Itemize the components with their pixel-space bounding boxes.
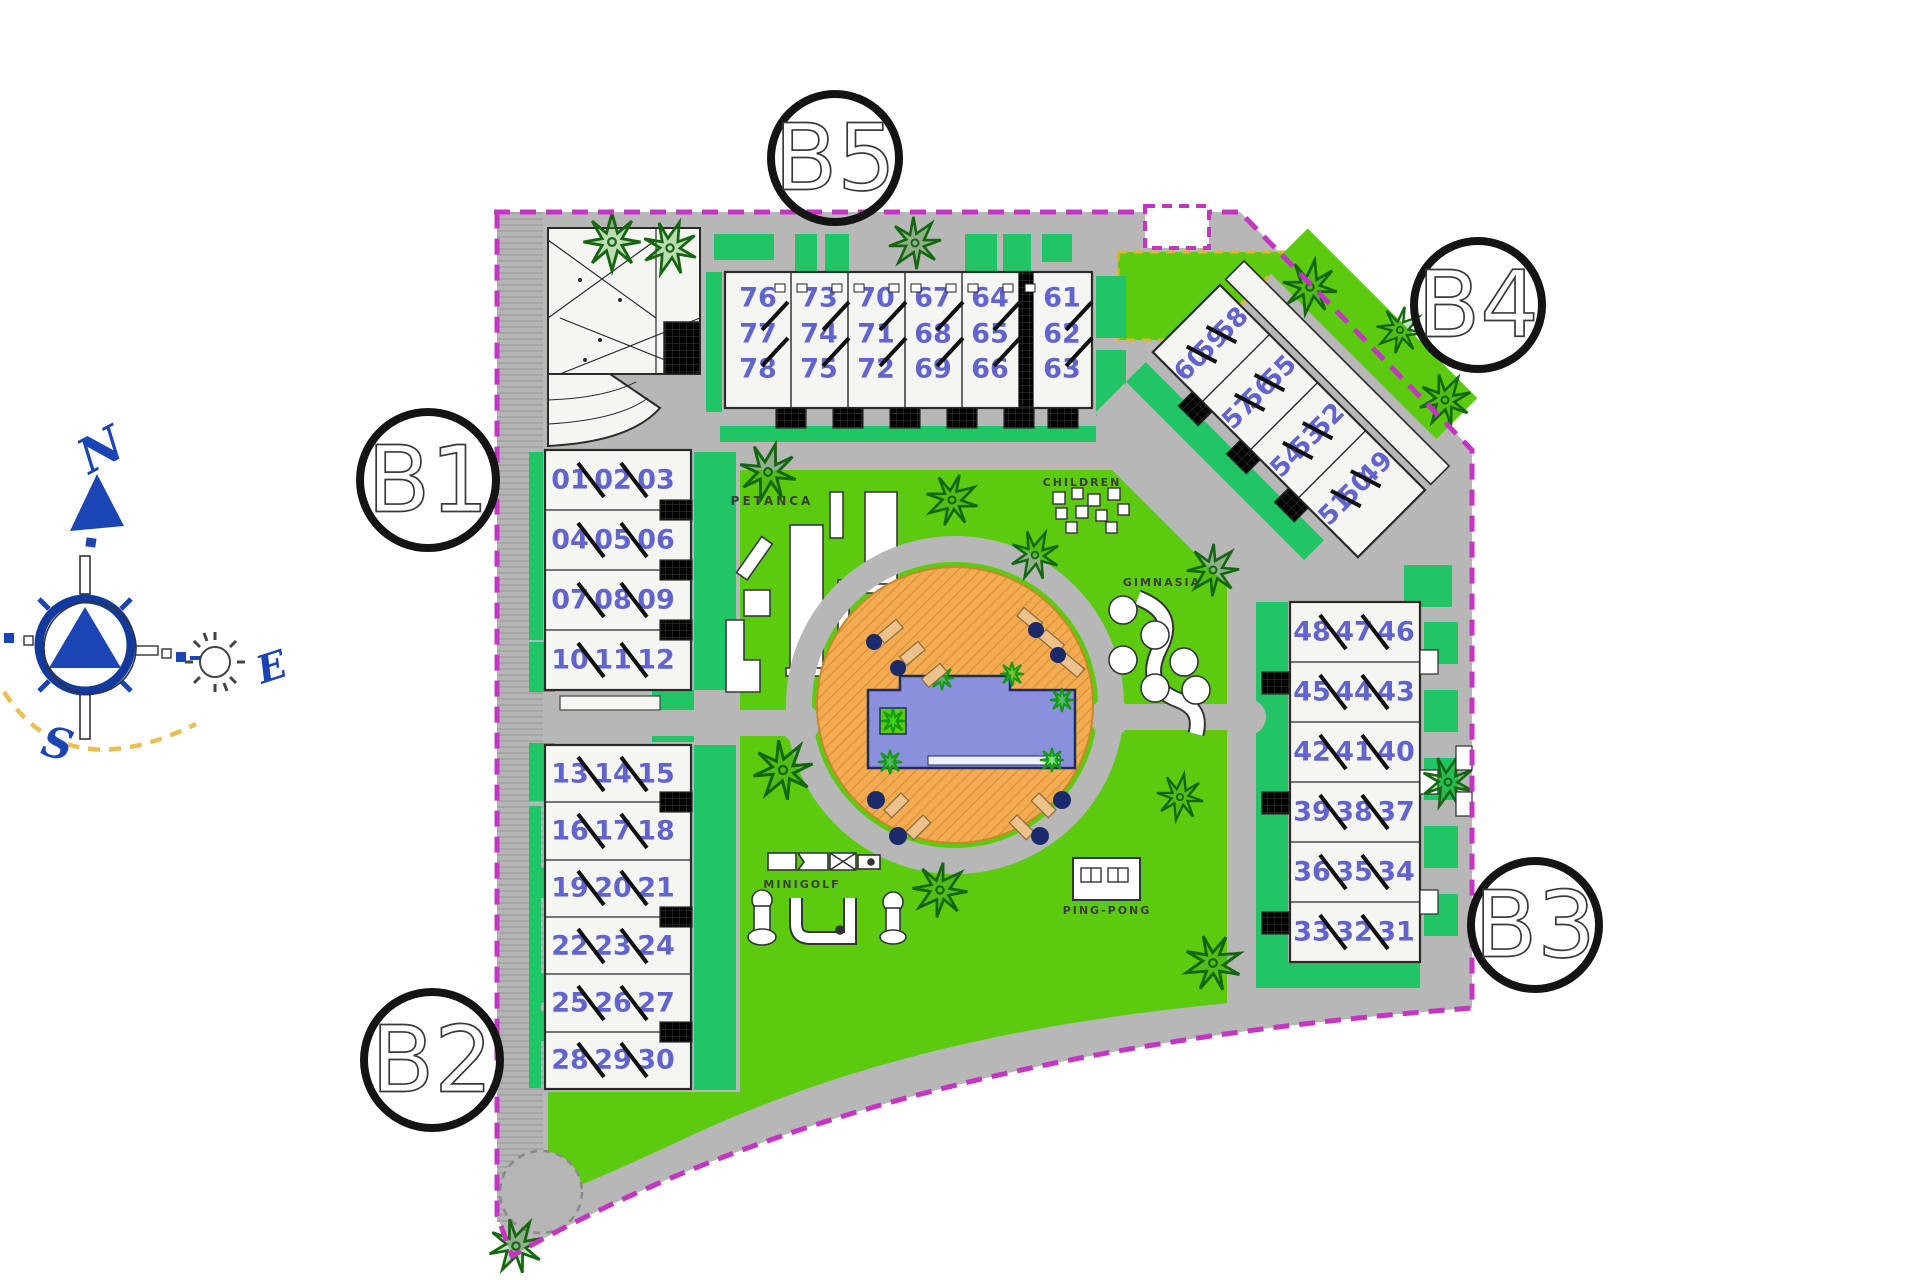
gimnasia-label: GIMNASIA — [1123, 576, 1201, 589]
building-b1: 010203040506070809101112 — [545, 450, 692, 690]
floor-plan-canvas: PETANCA — [0, 0, 1920, 1280]
compass-east-dashes — [132, 646, 202, 662]
compass-needle-south — [80, 691, 90, 739]
marker-b4: B4 — [1414, 241, 1542, 369]
pool-area — [799, 549, 1111, 861]
marker-b1-label: B1 — [367, 427, 489, 534]
petanca-label: PETANCA — [731, 494, 814, 508]
compass-north-label: N — [67, 414, 136, 486]
marker-b2: B2 — [364, 992, 500, 1128]
pingpong-area — [1073, 858, 1140, 900]
compass-east-label: E — [250, 640, 293, 692]
building-b5: 767778737475707172676869646566616263 — [725, 272, 1092, 428]
unit-number: 68 — [914, 319, 952, 350]
marker-b5: B5 — [771, 94, 899, 222]
unit-number: 71 — [857, 319, 895, 350]
compass-south-label: S — [37, 716, 78, 771]
marker-b5-label: B5 — [774, 105, 896, 212]
compass-rose: N E S — [4, 414, 293, 771]
site-plan-image: PETANCA — [0, 0, 1920, 1280]
marker-b1: B1 — [360, 412, 496, 548]
compass-needle-north — [70, 474, 124, 594]
compass-arc — [4, 692, 196, 750]
unit-number: 65 — [971, 319, 1009, 350]
marker-b3: B3 — [1471, 861, 1599, 989]
marker-b2-label: B2 — [371, 1007, 493, 1114]
marker-b3-label: B3 — [1474, 872, 1596, 979]
pingpong-label: PING-PONG — [1063, 904, 1152, 917]
unit-number: 61 — [1043, 283, 1081, 314]
roundabout — [500, 1151, 582, 1233]
minigolf-label: MINIGOLF — [763, 878, 840, 891]
unit-number: 77 — [739, 319, 777, 350]
entrance-gate — [1145, 206, 1209, 248]
unit-number: 76 — [739, 283, 777, 314]
building-b2: 131415161718192021222324252627282930 — [545, 745, 692, 1089]
unit-number: 62 — [1043, 319, 1081, 350]
sun-icon — [185, 632, 245, 692]
marker-b4-label: B4 — [1417, 252, 1539, 359]
unit-number: 74 — [800, 319, 838, 350]
children-label: CHILDREN — [1043, 476, 1122, 489]
